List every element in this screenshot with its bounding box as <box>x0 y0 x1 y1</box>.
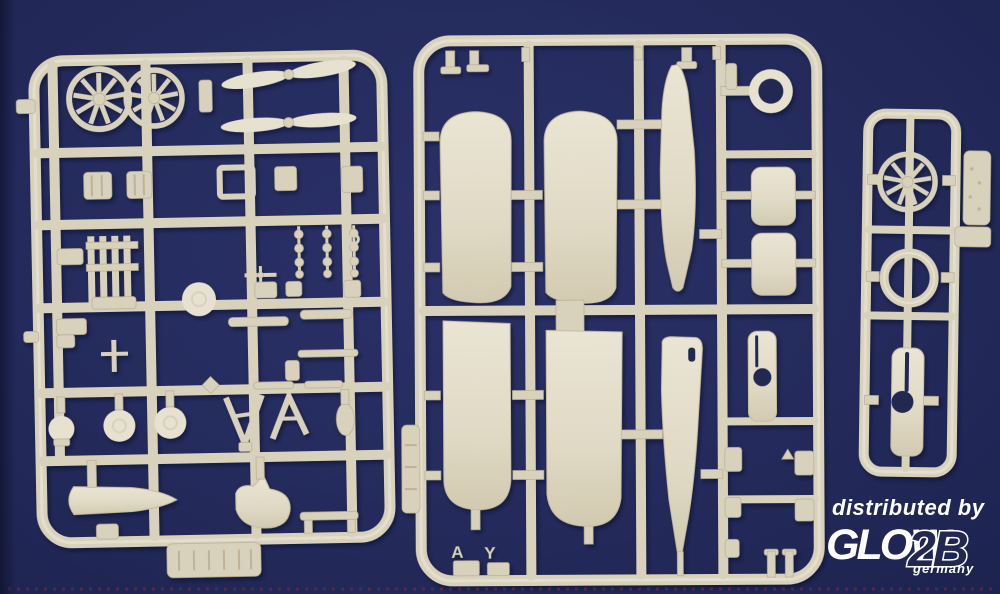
cylinder-block-part <box>84 172 113 200</box>
side-plate-part <box>963 151 991 225</box>
lower-wing-half-part <box>546 300 623 527</box>
cowl-cylinder-part <box>748 331 776 421</box>
small-block-part <box>274 166 296 190</box>
mold-letter-y: Y <box>484 544 496 563</box>
dome-wheel-part <box>48 397 75 446</box>
bead-strut-part <box>294 226 304 278</box>
radial-engine-part <box>69 69 130 130</box>
bench-part <box>300 511 358 533</box>
fuselage-half-part <box>660 65 696 292</box>
small-block-part <box>341 166 362 192</box>
left-sprue <box>15 55 391 581</box>
middle-sprue: A Y <box>400 39 820 581</box>
cowling-ring-part <box>721 63 793 113</box>
right-sprue <box>863 113 992 473</box>
wheel-part <box>154 391 187 440</box>
bracket-part <box>56 318 87 348</box>
wheel-disc-part <box>182 282 217 317</box>
a-strut-part <box>272 396 307 439</box>
side-tab-part <box>402 425 420 513</box>
engine-bearer-part <box>86 235 139 309</box>
nose-cone-part <box>68 459 177 540</box>
sprues-photo: A Y <box>0 0 1000 594</box>
wheel-part <box>103 393 136 442</box>
edge-stub <box>16 99 35 113</box>
cylinder-block-part <box>127 171 153 198</box>
edge-stub <box>24 331 39 342</box>
watermark-country: germany <box>912 561 974 576</box>
fuselage-half-part <box>661 337 703 576</box>
bead-strut-part <box>322 226 332 278</box>
cross-lever-part <box>101 340 129 373</box>
connector-part <box>199 80 213 112</box>
name-plate-part <box>167 542 262 578</box>
tail-panel-part <box>721 167 815 225</box>
cowl-piece-part <box>891 348 925 456</box>
watermark-distributed-by: distributed by <box>832 495 986 520</box>
sprues-photo-canvas: A Y <box>0 0 1000 594</box>
left-edge-shadow <box>0 0 16 594</box>
upper-wing-half-part <box>544 111 618 303</box>
mold-letter-a: A <box>451 543 463 562</box>
upper-wing-half-part <box>440 112 512 303</box>
side-tab-part <box>955 227 991 248</box>
propeller-part <box>220 111 357 135</box>
mold-letters: A Y <box>451 543 509 576</box>
radial-engine-part <box>126 70 183 127</box>
curved-fairing-part <box>235 457 291 529</box>
h-pin-part <box>764 549 796 577</box>
small-block-part <box>57 248 83 264</box>
watermark: distributed by GLOW 2B germany <box>826 495 986 577</box>
lower-wing-half-part <box>443 321 511 510</box>
tail-panel-part <box>722 233 816 295</box>
